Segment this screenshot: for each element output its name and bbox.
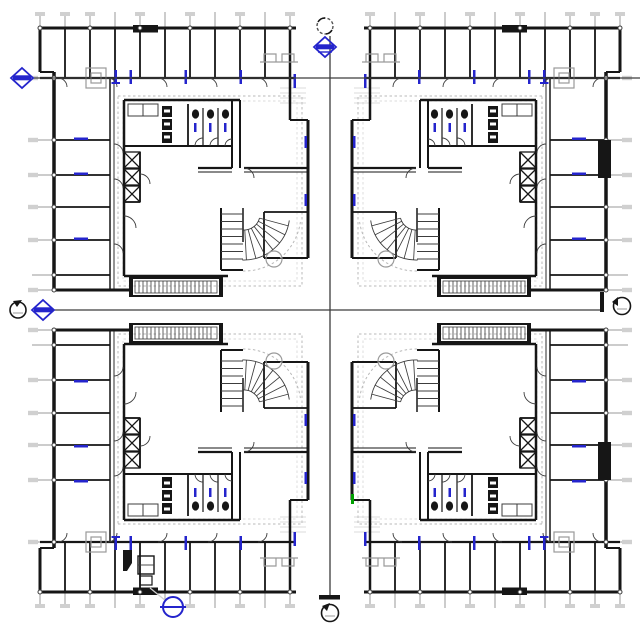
elevation-diamond-top[interactable]	[314, 37, 336, 57]
middle-section-line[interactable]: Horizontal section line with section hea…	[10, 292, 631, 320]
unit-plan-top-right: Upper-right unit plan (mirrored)	[352, 12, 632, 297]
floor-plan-canvas[interactable]: Architectural floor plan sheet with four…	[0, 0, 640, 640]
wall-fill-right-lower	[598, 442, 611, 480]
section-head-bottom[interactable]	[322, 603, 339, 622]
section-head-right[interactable]	[612, 297, 631, 315]
unit-plan-bottom-left: Lower-left unit plan (mirrored)	[28, 323, 308, 608]
section-head-top[interactable]	[317, 18, 333, 34]
green-elevation-tick	[351, 494, 354, 504]
wall-fill-right-upper	[598, 140, 611, 178]
kitchen-fixtures: Kitchen fixtures in lower-left unit	[123, 550, 154, 585]
unit-plan-top-left: Upper-left unit plan	[28, 12, 308, 297]
elevation-diamond-middle[interactable]	[32, 300, 54, 320]
drawing-sheet: Architectural floor plan sheet with four…	[0, 0, 640, 640]
section-head-left[interactable]	[10, 300, 26, 318]
vertical-section-line[interactable]: Vertical section line with section heads…	[314, 18, 340, 622]
unit-plan-bottom-right: Lower-right unit plan (mirrored)	[352, 323, 632, 608]
elevation-diamond-upper-left[interactable]	[11, 68, 33, 88]
